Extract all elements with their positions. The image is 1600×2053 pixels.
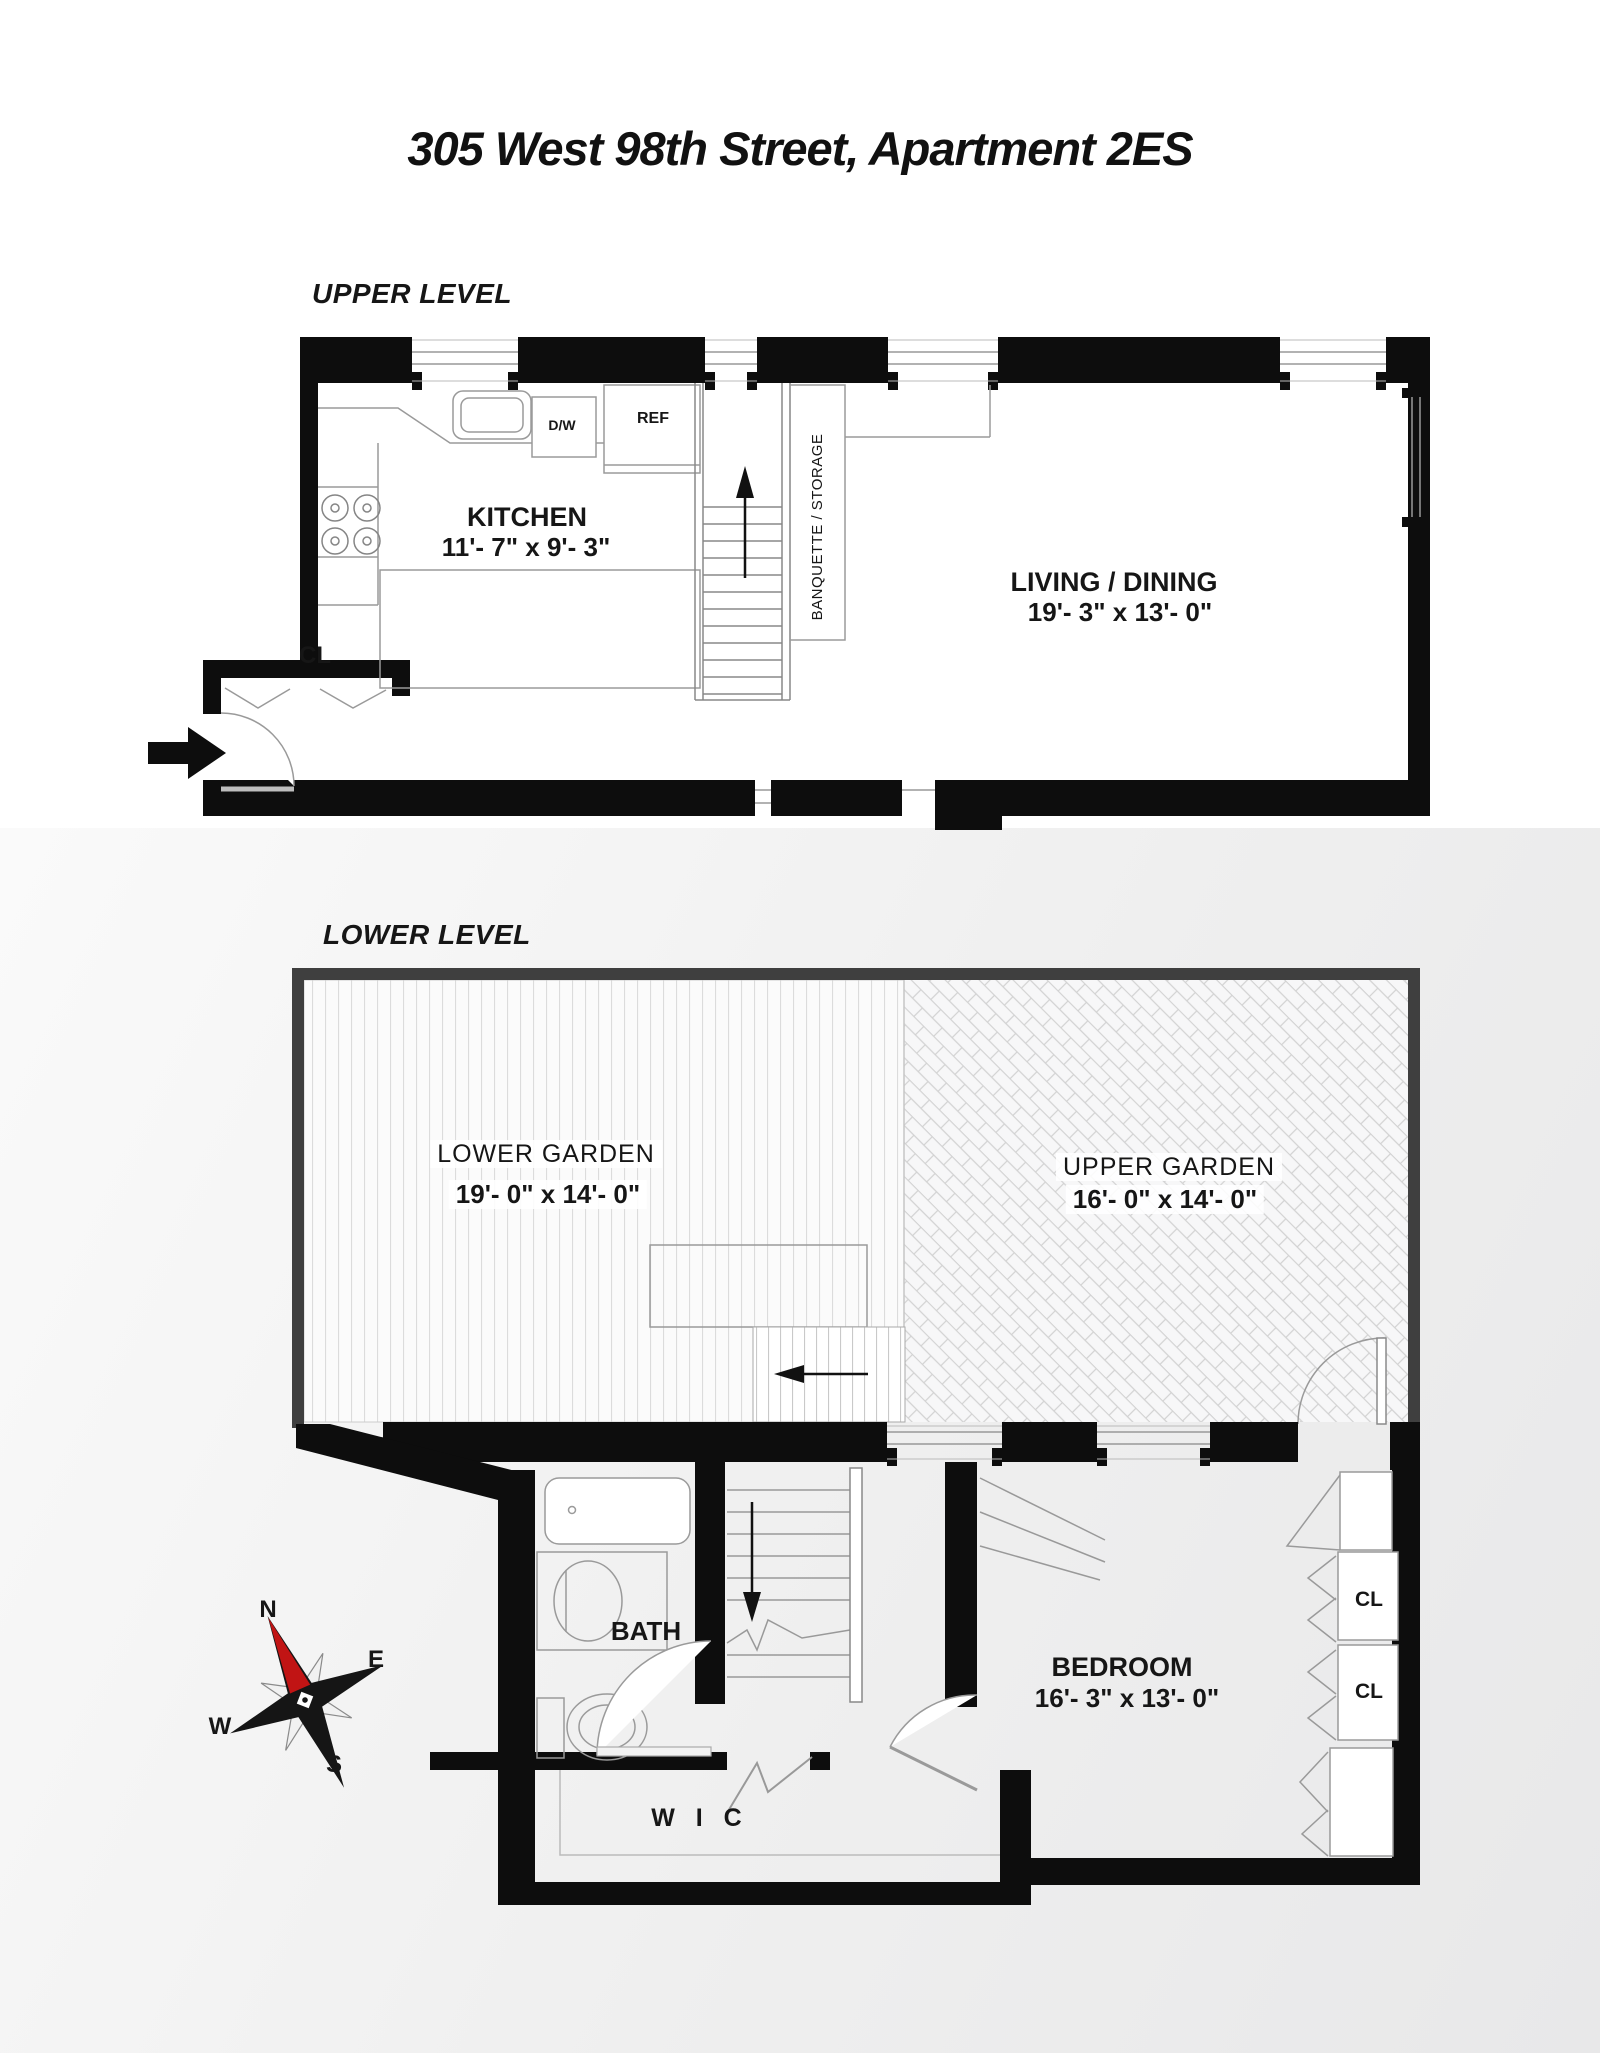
- compass-west-label: W: [209, 1714, 232, 1739]
- lower-garden-label: LOWER GARDEN: [430, 1140, 662, 1168]
- stair-up-arrow-icon: [736, 466, 754, 578]
- kitchen-dims: 11'- 7" x 9'- 3": [442, 534, 611, 561]
- kitchen-sink: [453, 391, 531, 439]
- bedroom-label: BEDROOM: [1052, 1653, 1193, 1681]
- upper-garden-label: UPPER GARDEN: [1056, 1153, 1282, 1181]
- bath-door-arc: [597, 1641, 711, 1756]
- compass-rose-icon: [193, 1581, 423, 1821]
- floor-plan-drawing: [0, 0, 1600, 2053]
- entry-door-arc: [221, 713, 294, 789]
- lower-stairs: [727, 1478, 1105, 1677]
- compass-north-label: N: [259, 1597, 276, 1622]
- closet-bottom: [1330, 1748, 1393, 1856]
- lower-level-plan: [193, 968, 1420, 1905]
- dishwasher-label: D/W: [548, 418, 575, 433]
- upper-level-label: UPPER LEVEL: [312, 279, 512, 308]
- lower-level-label: LOWER LEVEL: [323, 920, 531, 949]
- living-dining-label: LIVING / DINING: [1010, 568, 1217, 596]
- banquette-label: BANQUETTE / STORAGE: [810, 434, 826, 621]
- bathtub: [545, 1478, 690, 1544]
- kitchen-label: KITCHEN: [467, 503, 587, 531]
- upper-level-plan: [148, 337, 1430, 830]
- entry-arrow-icon: [148, 727, 226, 779]
- bedroom-closets: [1287, 1472, 1398, 1856]
- closet-2-label: CL: [1355, 1681, 1383, 1703]
- wic-room: [560, 1757, 1000, 1855]
- rear-door-gap: [902, 780, 935, 816]
- north-needle: [258, 1613, 310, 1693]
- bedroom-door-arc: [890, 1695, 977, 1790]
- closet-1-label: CL: [1355, 1589, 1383, 1611]
- garden-landing: [650, 1245, 867, 1327]
- refrigerator: [604, 385, 700, 473]
- stair-rail: [850, 1468, 862, 1702]
- terrace-door-gap: [755, 780, 771, 816]
- bath-label: BATH: [611, 1618, 681, 1645]
- stove-burners: [322, 495, 380, 554]
- compass-south-label: S: [326, 1752, 342, 1777]
- page-title: 305 West 98th Street, Apartment 2ES: [0, 124, 1600, 173]
- closet-bifold-doors: [225, 688, 386, 708]
- bedroom-dims: 16'- 3" x 13'- 0": [1035, 1685, 1219, 1712]
- wic-label: W I C: [651, 1805, 749, 1831]
- closet-top: [1340, 1472, 1392, 1550]
- lower-garden-dims: 19'- 0" x 14'- 0": [449, 1180, 647, 1209]
- stair-down-arrow-icon: [743, 1502, 761, 1622]
- kitchen-island: [380, 570, 700, 688]
- upper-garden-dims: 16'- 0" x 14'- 0": [1066, 1185, 1264, 1214]
- upper-stairs: [695, 383, 790, 700]
- upper-closet-label: CL: [299, 643, 331, 668]
- living-dining-dims: 19'- 3" x 13'- 0": [1028, 599, 1212, 626]
- refrigerator-label: REF: [637, 411, 669, 428]
- floor-plan-page: 305 West 98th Street, Apartment 2ES UPPE…: [0, 0, 1600, 2053]
- compass-east-label: E: [368, 1647, 384, 1672]
